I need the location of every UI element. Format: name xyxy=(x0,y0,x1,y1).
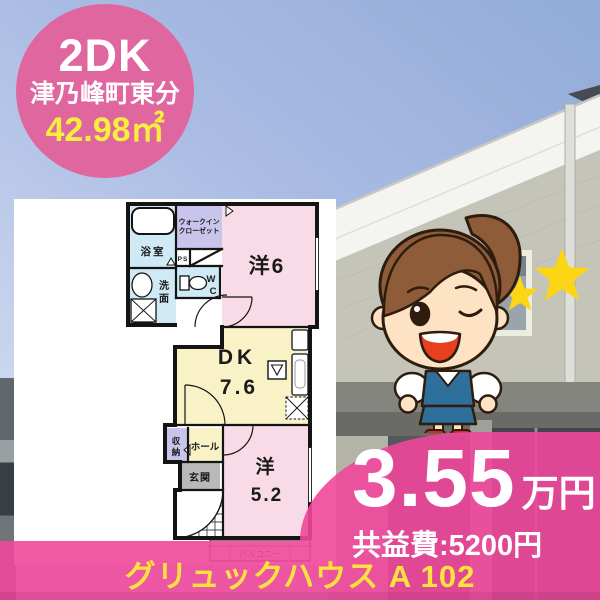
label-western52-1: 洋 xyxy=(255,455,274,478)
label-wc-1: W xyxy=(207,274,216,285)
label-hall: ホール xyxy=(191,442,220,453)
room-walkin-closet xyxy=(176,204,222,249)
star-icon-large xyxy=(534,248,589,301)
toilet-icon xyxy=(180,276,207,290)
room-western52 xyxy=(223,425,310,538)
label-dk-1: DK xyxy=(218,346,256,369)
open-eye xyxy=(411,303,430,326)
stairs xyxy=(175,490,223,538)
label-wic-1: ウォークイン xyxy=(179,217,220,226)
rent-unit: 万円 xyxy=(522,463,596,517)
label-storage-1: 収 xyxy=(172,436,181,446)
label-entrance: 玄関 xyxy=(189,471,211,484)
label-wic-2: クローゼット xyxy=(179,226,220,235)
skirt xyxy=(420,406,476,424)
location-name: 津乃峰町東分 xyxy=(30,79,180,110)
price-block: 3.55 万円 共益費:5200円 xyxy=(352,438,600,564)
label-storage-2: 納 xyxy=(172,447,181,457)
floorplan-diagram: 浴室 ウォークイン クローゼット PS W C 洗 面 洋6 DK 7.6 収 … xyxy=(14,199,336,565)
label-bath: 浴室 xyxy=(141,245,166,258)
label-wc-2: C xyxy=(210,286,217,297)
label-western52-2: 5.2 xyxy=(251,485,283,506)
label-western6: 洋6 xyxy=(249,254,286,278)
floorplan-panel: 浴室 ウォークイン クローゼット PS W C 洗 面 洋6 DK 7.6 収 … xyxy=(14,199,336,565)
label-dk-2: 7.6 xyxy=(220,376,258,399)
property-name: グリュックハウス A 102 xyxy=(0,551,600,596)
mascot-character-icon xyxy=(370,208,530,433)
rent-value: 3.55 xyxy=(352,438,516,520)
property-badge: 2DK 津乃峰町東分 42.98㎡ xyxy=(16,4,194,178)
listing-card: 浴室 ウォークイン クローゼット PS W C 洗 面 洋6 DK 7.6 収 … xyxy=(0,0,600,600)
label-ps: PS xyxy=(178,256,189,263)
label-wash-1: 洗 xyxy=(159,279,169,292)
bathtub-icon xyxy=(132,208,174,234)
layout-type: 2DK xyxy=(58,32,151,79)
floor-area: 42.98㎡ xyxy=(45,111,164,150)
label-wash-2: 面 xyxy=(159,293,169,305)
